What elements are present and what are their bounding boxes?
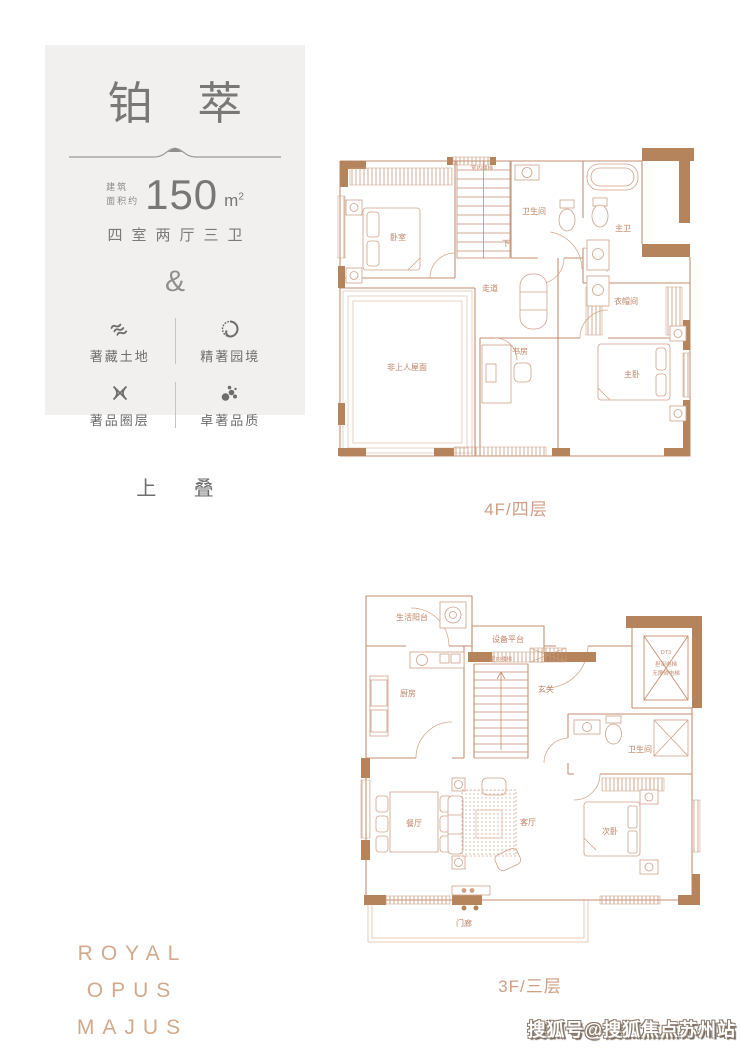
walls	[340, 161, 690, 456]
elevator-id-label: DT3	[661, 650, 671, 656]
room-label-stairs: 室内楼梯	[471, 164, 494, 172]
plan-title: 铂 萃	[45, 81, 305, 126]
area-value: 150	[145, 176, 218, 214]
watermark: 搜狐号@搜狐焦点苏州站	[527, 1016, 736, 1042]
quality-dots-icon	[218, 381, 242, 405]
area-prefix: 建筑 面积约	[106, 181, 139, 208]
area-unit: m2	[224, 191, 244, 214]
roof-terrace	[343, 291, 472, 453]
room-label-master-bath: 主卫	[615, 223, 631, 233]
area-info: 建筑 面积约 150 m2	[45, 176, 305, 214]
info-card: 铂 萃 建筑 面积约 150 m2 四室两厅三卫 & 著藏土地	[45, 45, 305, 415]
room-label-roof: 非上人屋面	[387, 362, 427, 372]
room-label-stairs: 室内楼梯	[490, 655, 513, 663]
land-waves-icon	[108, 317, 132, 341]
furniture	[346, 164, 686, 421]
furniture	[370, 602, 688, 911]
room-label-kitchen: 厨房	[400, 688, 416, 698]
room-label-dining: 餐厅	[406, 819, 422, 828]
feature-garden: 精著园境	[176, 317, 286, 365]
room-label-bedroom: 卧室	[390, 232, 406, 242]
elevator-label-2: 无障碍电梯	[652, 669, 680, 677]
room-label-foyer: 玄关	[538, 684, 554, 694]
wall-piers	[338, 148, 694, 456]
brand-logo: ROYAL OPUS MAJUS	[35, 936, 230, 1046]
feature-quality: 卓著品质	[176, 381, 286, 429]
elevator-label-1: 担架电梯	[655, 660, 678, 668]
brand-line2: MAJUS	[35, 1010, 230, 1047]
room-label-study: 书房	[512, 346, 528, 356]
room-label-corridor: 走道	[482, 283, 498, 293]
feature-grid: 著藏土地 精著园境 著品圈层	[65, 317, 285, 429]
room-label-service-balcony: 生活阳台	[396, 612, 428, 622]
floor-plan-3f: 生活阳台 设备平台 室内楼梯 厨房 玄关 DT3 担架电梯 无障碍电梯 卫生间 …	[356, 588, 704, 966]
feature-land: 著藏土地	[65, 317, 175, 365]
room-label-bedroom2: 次卧	[602, 826, 618, 836]
ribbon-cross-icon	[108, 381, 132, 405]
floor-plan-3f-drawing: 生活阳台 设备平台 室内楼梯 厨房 玄关 DT3 担架电梯 无障碍电梯 卫生间 …	[356, 588, 704, 966]
garden-circle-icon	[218, 317, 242, 341]
staircase	[474, 664, 528, 758]
floor-caption-4f: 4F/四层	[330, 495, 702, 520]
window-hatches	[338, 157, 690, 456]
room-label-bath: 卫生间	[522, 206, 546, 216]
floor-plan-4f-drawing: 卧室 室内楼梯 下 卫生间 主卫 走道 衣帽间 主卧 书房 非上人屋面	[330, 148, 702, 464]
elevator	[644, 636, 688, 700]
porch-outline	[368, 900, 588, 942]
living-rug	[462, 790, 516, 856]
divider-ornament	[69, 146, 281, 160]
feature-circle: 著品圈层	[65, 381, 175, 429]
floor-plan-4f: 卧室 室内楼梯 下 卫生间 主卫 走道 衣帽间 主卧 书房 非上人屋面	[330, 148, 702, 464]
room-label-down: 下	[502, 239, 510, 248]
room-label-bath: 卫生间	[628, 744, 652, 754]
room-label-porch: 门廊	[456, 918, 472, 928]
room-label-master-bedroom: 主卧	[624, 369, 640, 379]
stack-type-label: 上 叠	[45, 472, 305, 501]
room-label-living: 客厅	[520, 817, 536, 827]
floor-caption-3f: 3F/三层	[356, 972, 704, 997]
brand-line1: ROYAL OPUS	[35, 936, 230, 1010]
room-label-equipment-platform: 设备平台	[492, 634, 524, 644]
room-layout-text: 四室两厅三卫	[45, 224, 305, 245]
room-label-closet: 衣帽间	[614, 296, 638, 306]
ampersand: &	[45, 265, 305, 299]
